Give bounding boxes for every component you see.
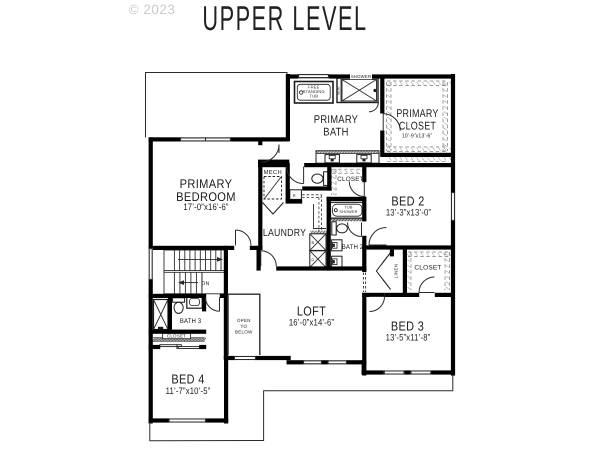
svg-text:17’-0”x16’-6”: 17’-0”x16’-6” — [183, 201, 228, 212]
svg-text:TO: TO — [240, 324, 247, 329]
svg-text:11’-7”x10’-5”: 11’-7”x10’-5” — [166, 385, 211, 396]
svg-text:16’-0”x14’-6”: 16’-0”x14’-6” — [289, 317, 334, 328]
svg-text:PRIMARY: PRIMARY — [396, 108, 438, 120]
svg-text:MECH: MECH — [264, 169, 282, 176]
svg-text:LINEN: LINEN — [394, 264, 399, 278]
svg-text:UPPER LEVEL: UPPER LEVEL — [202, 0, 367, 38]
svg-text:W: W — [311, 240, 315, 244]
svg-text:TUB: TUB — [309, 93, 318, 98]
svg-text:13’-5”x11’-8”: 13’-5”x11’-8” — [386, 332, 431, 343]
svg-text:BATH 3: BATH 3 — [180, 318, 202, 325]
svg-text:SEAT: SEAT — [337, 86, 341, 95]
svg-text:SHOWER: SHOWER — [339, 210, 357, 214]
svg-text:R: R — [293, 193, 296, 198]
svg-text:SHOWER: SHOWER — [351, 74, 372, 79]
svg-text:PRIMARY: PRIMARY — [314, 114, 359, 126]
svg-text:DN: DN — [202, 281, 210, 287]
svg-text:CLOSET: CLOSET — [399, 121, 436, 133]
svg-text:13’-3”x13’-0”: 13’-3”x13’-0” — [386, 207, 431, 218]
svg-text:CLOSET: CLOSET — [337, 176, 363, 183]
svg-text:LAUNDRY: LAUNDRY — [263, 228, 306, 239]
svg-text:© 2023: © 2023 — [129, 2, 176, 17]
svg-text:D: D — [311, 258, 315, 261]
svg-text:TUB: TUB — [344, 205, 352, 209]
svg-text:BATH: BATH — [323, 127, 348, 139]
svg-text:OPEN: OPEN — [237, 318, 251, 323]
svg-text:10’-9”x13’-6”: 10’-9”x13’-6” — [402, 133, 432, 140]
svg-text:BELOW: BELOW — [235, 329, 253, 334]
svg-text:CLOSET: CLOSET — [414, 265, 441, 272]
svg-text:BATH 2: BATH 2 — [342, 244, 364, 251]
svg-text:PRIMARY: PRIMARY — [180, 177, 233, 191]
svg-text:CLOSET: CLOSET — [167, 334, 186, 339]
